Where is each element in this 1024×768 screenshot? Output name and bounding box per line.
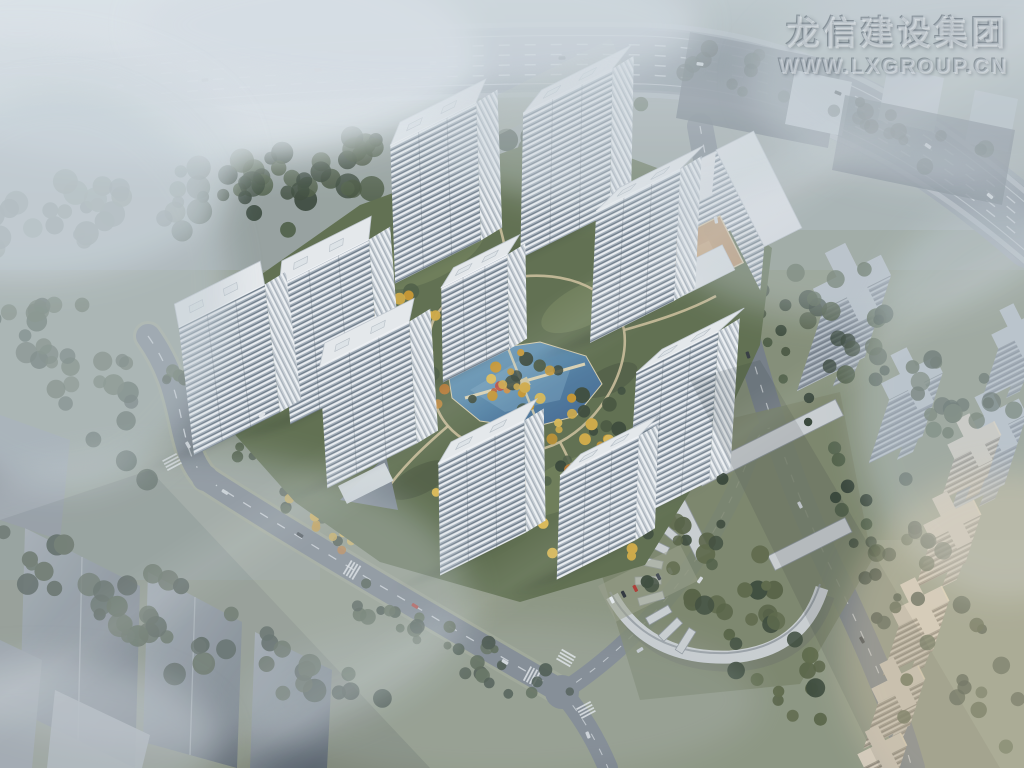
- atmosphere: [0, 0, 1024, 768]
- rendering-canvas: [0, 0, 1024, 768]
- aerial-rendering: 龙信建设集团 WWW.LXGROUP.CN: [0, 0, 1024, 768]
- color-grade: [0, 0, 1024, 768]
